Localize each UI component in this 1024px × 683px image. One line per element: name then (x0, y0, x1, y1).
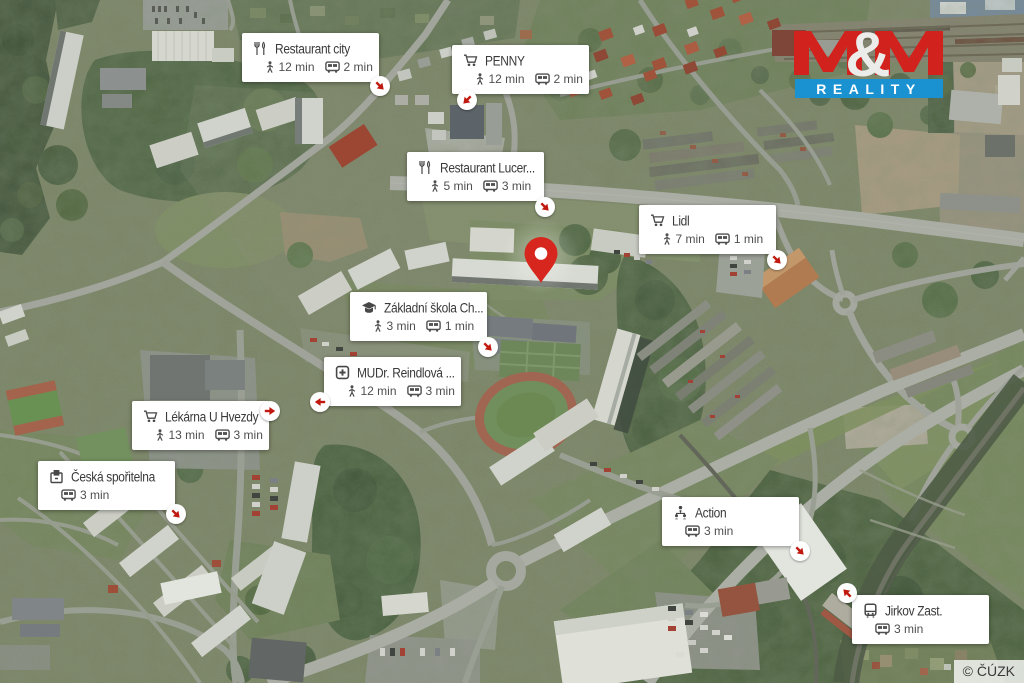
svg-text:REALITY: REALITY (816, 81, 921, 97)
